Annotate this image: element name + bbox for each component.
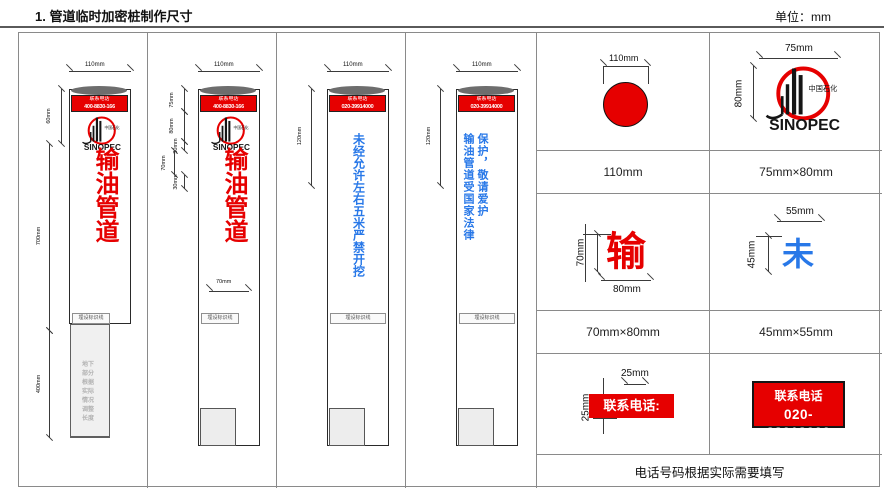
dim-line — [777, 221, 822, 222]
red-circle-detail — [603, 82, 648, 127]
extension-line — [603, 66, 604, 84]
dim-label: 700mm — [36, 219, 42, 253]
dim-line — [184, 112, 185, 142]
dim-label-width: 110mm — [214, 62, 234, 68]
underground-section: 地下部分根据实际情况调整长度 — [70, 324, 110, 438]
dim-line — [184, 175, 185, 189]
pile-column-1: 110mm 联系电话 400-8830-166 输油管道 埋设标识线 地下部分根… — [19, 33, 148, 488]
dim-label: 80mm — [734, 72, 745, 116]
pile-body-text: 输油管道受国家法律保护，敬请爱护 — [461, 133, 489, 247]
drawing-grid: 110mm 联系电话 400-8830-166 输油管道 埋设标识线 地下部分根… — [18, 32, 880, 487]
wei-detail-cell: 未 55mm 45mm — [709, 194, 882, 310]
dim-line — [49, 331, 50, 438]
extension-line — [756, 236, 782, 237]
wei-caption: 45mm×55mm — [709, 311, 882, 353]
dim-line — [184, 142, 185, 151]
dim-label: 70mm — [161, 146, 167, 180]
dim-label: 400mm — [36, 367, 42, 401]
circle-detail-cell: 110mm — [537, 33, 709, 150]
dim-label: 80mm — [613, 284, 641, 295]
dim-line — [603, 66, 648, 67]
pile-cap — [71, 86, 127, 95]
dim-line-width — [198, 71, 260, 72]
dim-line — [597, 234, 598, 272]
marker-line-label: 埋设标识线 — [459, 313, 515, 324]
dim-label: 30mm — [173, 165, 179, 199]
dim-line — [768, 236, 769, 272]
sinopec-logo-icon — [756, 63, 840, 137]
dim-line — [184, 89, 185, 112]
dim-line-width — [69, 71, 131, 72]
dim-line — [61, 89, 62, 144]
marker-line-label: 埋设标识线 — [72, 313, 110, 324]
extension-line — [583, 234, 611, 235]
dim-label: 25mm — [621, 368, 649, 379]
underground-note: 地下部分根据实际情况调整长度 — [82, 361, 96, 424]
logo-caption: 75mm×80mm — [709, 151, 882, 193]
underground-square — [458, 408, 494, 446]
dim-line — [624, 384, 646, 385]
dim-label: 120mm — [426, 119, 432, 153]
footer-note: 电话号码根据实际需要填写 — [537, 454, 882, 488]
dim-label: 55mm — [786, 206, 814, 217]
contact-strip: 联系电话: — [589, 394, 674, 418]
pile-body-text: 未经允许左右五米严禁开挖 — [351, 133, 365, 297]
phone-plate-number: 400-8830-166 — [72, 103, 127, 111]
phone-plate-number: 020-39914000 — [330, 103, 385, 111]
dim-line — [49, 144, 50, 331]
phone-plate-number: 020-39914000 — [459, 103, 514, 111]
logo-detail-cell: 75mm 80mm — [709, 33, 882, 150]
dim-label: 75mm — [785, 43, 813, 54]
dim-line-char-width — [209, 291, 249, 292]
detail-panel: 110mm 75mm 80mm 110mm 75mm×80mm — [536, 33, 881, 488]
phone-plate-label: 联系电话 — [330, 96, 385, 103]
pile-cap — [329, 86, 385, 95]
dim-line-width — [327, 71, 389, 72]
dim-label-width: 110mm — [472, 62, 492, 68]
phone-plate: 联系电话 020-39914000 — [458, 95, 515, 112]
phone-plate-label: 联系电话 — [459, 96, 514, 103]
wei-character: 未 — [778, 236, 818, 272]
shu-detail-cell: 输 70mm 80mm — [537, 194, 709, 310]
pile-column-3: 110mm 联系电话 020-39914000 未经允许左右五米严禁开挖 埋设标… — [277, 33, 406, 488]
page-title: 1. 管道临时加密桩制作尺寸 — [35, 6, 192, 25]
phone-plate-label: 联系电话 — [201, 96, 256, 103]
phone-plate-number: 400-8830-166 — [201, 103, 256, 111]
dim-label: 120mm — [297, 119, 303, 153]
dim-label: 60mm — [46, 99, 52, 133]
phone-plate: 联系电话 020-39914000 — [329, 95, 386, 112]
dim-line — [311, 89, 312, 186]
dim-label: 45mm — [747, 233, 758, 277]
detail-row-1: 110mm 75mm 80mm — [537, 33, 882, 150]
marker-line-label: 埋设标识线 — [201, 313, 239, 324]
dim-line — [753, 66, 754, 119]
detail-row-2: 输 70mm 80mm 未 55mm 45mm — [537, 194, 882, 310]
contact-label: 联系电话 — [754, 386, 843, 406]
dim-label-char-width: 70mm — [216, 279, 231, 285]
extension-line — [593, 418, 617, 419]
detail-row-3: 25mm 25mm 联系电话: 联系电话 020-38018000 — [537, 354, 882, 454]
shu-caption: 70mm×80mm — [537, 311, 709, 353]
caption-row-1: 110mm 75mm×80mm — [537, 150, 882, 194]
pile-cap — [458, 86, 514, 95]
circle-caption: 110mm — [537, 151, 709, 193]
phone-plate: 联系电话 400-8830-166 — [200, 95, 257, 112]
phone-plate-label: 联系电话 — [72, 96, 127, 103]
phone-box-cell: 联系电话 020-38018000 — [709, 354, 882, 454]
phone-strip-cell: 25mm 25mm 联系电话: — [537, 354, 709, 454]
dim-label-width: 110mm — [85, 62, 105, 68]
contact-number: 020-38018000 — [754, 406, 843, 442]
dim-label: 110mm — [609, 53, 638, 63]
dim-line — [759, 58, 838, 59]
caption-row-2: 70mm×80mm 45mm×55mm — [537, 310, 882, 354]
pile-body-text: 输油管道 — [88, 147, 120, 279]
pile-cap — [200, 86, 256, 95]
pile-column-2: 110mm 联系电话 400-8830-166 输油管道 70mm 埋设标识线 … — [148, 33, 277, 488]
dim-label-width: 110mm — [343, 62, 363, 68]
contact-phone-box: 联系电话 020-38018000 — [752, 381, 845, 428]
shu-character: 输 — [601, 230, 651, 274]
dim-line-width — [456, 71, 518, 72]
underground-square — [329, 408, 365, 446]
pile-body-text: 输油管道 — [217, 147, 249, 279]
underground-square — [200, 408, 236, 446]
extension-line — [585, 224, 586, 282]
unit-label: 单位：mm — [775, 8, 831, 25]
phone-plate: 联系电话 400-8830-166 — [71, 95, 128, 112]
marker-line-label: 埋设标识线 — [330, 313, 386, 324]
pile-column-4: 110mm 联系电话 020-39914000 输油管道受国家法律保护，敬请爱护… — [406, 33, 536, 488]
dim-line — [440, 89, 441, 186]
dim-line — [601, 280, 651, 281]
spec-sheet: 1. 管道临时加密桩制作尺寸 单位：mm 110mm 联系电话 400-8830… — [0, 0, 884, 489]
extension-line — [648, 66, 649, 84]
header-divider — [0, 26, 884, 28]
